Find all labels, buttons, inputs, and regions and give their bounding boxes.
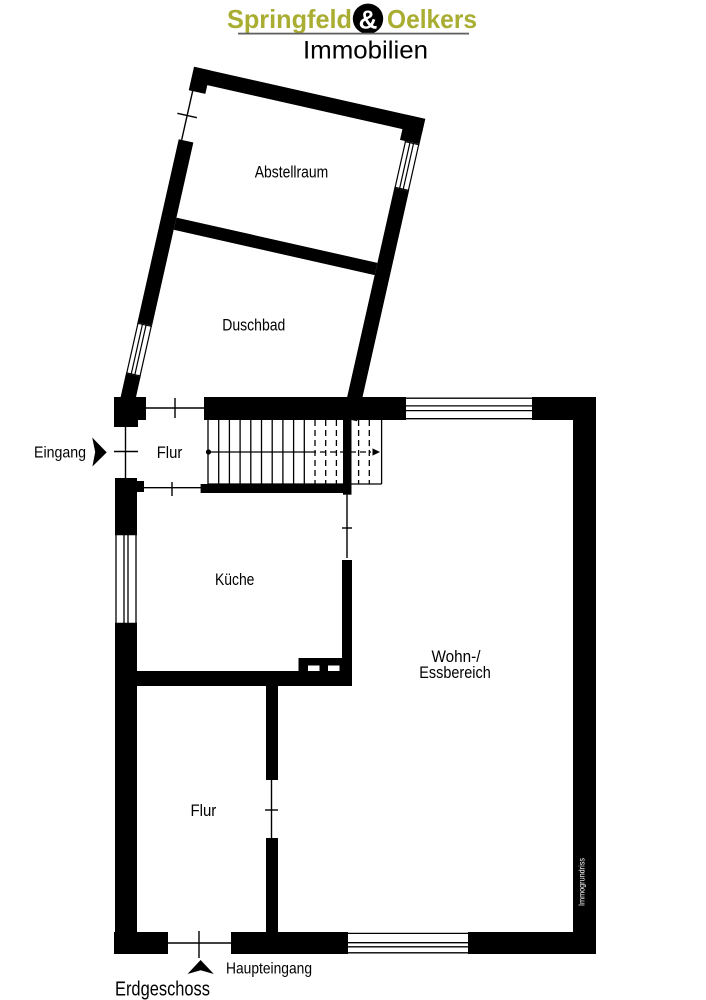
svg-text:Abstellraum: Abstellraum [255,164,329,182]
svg-text:Essbereich: Essbereich [419,664,491,682]
svg-text:Küche: Küche [215,571,255,589]
svg-text:Haupteingang: Haupteingang [226,960,312,977]
svg-text:Eingang: Eingang [34,445,86,462]
svg-text:&: & [359,5,378,35]
svg-text:Immobilien: Immobilien [303,37,428,65]
svg-text:Flur: Flur [157,444,183,462]
svg-text:Duschbad: Duschbad [222,316,285,334]
svg-text:Springfeld: Springfeld [227,4,352,34]
svg-text:Flur: Flur [191,802,217,820]
svg-text:Oelkers: Oelkers [387,4,477,34]
svg-text:Immogrundriss: Immogrundriss [578,858,587,906]
svg-text:Erdgeschoss: Erdgeschoss [115,979,210,1000]
